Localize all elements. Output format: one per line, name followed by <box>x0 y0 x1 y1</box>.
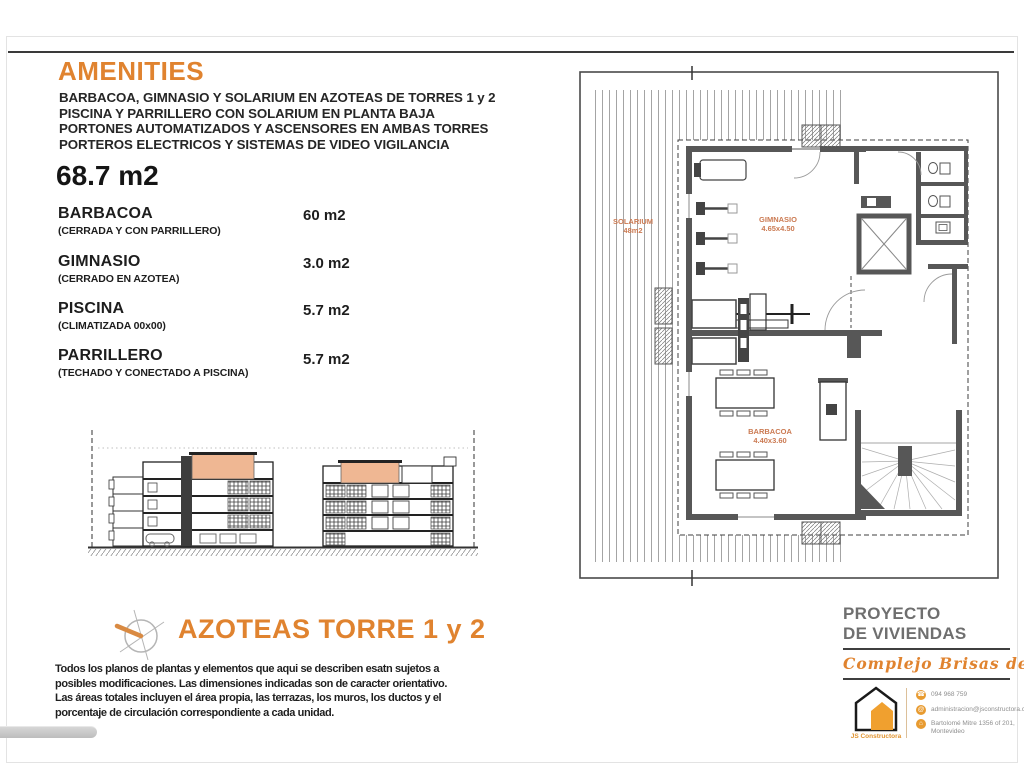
description-line: PORTEROS ELECTRICOS Y SISTEMAS DE VIDEO … <box>59 137 495 153</box>
disclaimer-line: Todos los planos de plantas y elementos … <box>55 662 447 677</box>
email-icon: @ <box>916 705 926 715</box>
amenity-row-gimnasio: GIMNASIO (CERRADO EN AZOTEA) <box>58 253 179 285</box>
amenity-note: (CLIMATIZADA 00x00) <box>58 320 166 332</box>
grill-counter <box>818 378 848 440</box>
contact-email: @ administracion@jsconstructora.com <box>916 705 1024 715</box>
amenity-area: 5.7 m2 <box>303 302 350 319</box>
compass-icon <box>112 608 168 662</box>
amenity-area: 60 m2 <box>303 207 346 224</box>
building-elevation-drawing <box>88 420 478 566</box>
amenities-title: AMENITIES <box>58 56 204 87</box>
total-area: 68.7 m2 <box>56 160 159 192</box>
company-logo <box>852 686 900 732</box>
description-line: BARBACOA, GIMNASIO Y SOLARIUM EN AZOTEAS… <box>59 90 495 106</box>
amenity-note: (CERRADA Y CON PARRILLERO) <box>58 225 221 237</box>
amenity-name: PISCINA <box>58 300 166 318</box>
disclaimer-line: posibles modificaciones. Las dimensiones… <box>55 677 447 692</box>
solarium-label: SOLARIUM <box>613 217 653 226</box>
tower-1-section <box>109 454 273 547</box>
phone-icon: ☎ <box>916 690 926 700</box>
rooftop-amenity-highlight <box>192 454 254 479</box>
amenity-name: BARBACOA <box>58 205 221 223</box>
contact-address: ⌂ Bartolomé Mitre 1356 of 201, Montevide… <box>916 719 1015 735</box>
floor-plan-drawing: SOLARIUM 48m2 GIMNASIO 4.65x4.50 BARBACO… <box>578 64 1000 588</box>
gimnasio-dim: 4.65x4.50 <box>761 224 794 233</box>
elevator-core <box>181 456 192 546</box>
amenity-note: (CERRADO EN AZOTEA) <box>58 273 179 285</box>
tower-2-section <box>323 457 456 546</box>
amenity-note: (TECHADO Y CONECTADO A PISCINA) <box>58 367 248 379</box>
amenity-row-parrillero: PARRILLERO (TECHADO Y CONECTADO A PISCIN… <box>58 347 248 379</box>
disclaimer: Todos los planos de plantas y elementos … <box>55 662 447 720</box>
barbacoa-label: BARBACOA <box>748 427 792 436</box>
bathroom-fixtures <box>929 163 951 234</box>
top-divider-line <box>8 51 1014 53</box>
amenity-name: PARRILLERO <box>58 347 248 365</box>
elevator-shaft <box>859 216 909 272</box>
description-line: PORTONES AUTOMATIZADOS Y ASCENSORES EN A… <box>59 121 495 137</box>
amenity-row-piscina: PISCINA (CLIMATIZADA 00x00) <box>58 300 166 332</box>
amenity-area: 3.0 m2 <box>303 255 350 272</box>
sink-counter <box>861 196 891 208</box>
footer-vertical-divider <box>906 688 907 738</box>
staircase <box>861 443 956 509</box>
disclaimer-line: Las áreas totales incluyen el área propi… <box>55 691 447 706</box>
barbacoa-dim: 4.40x3.60 <box>753 436 786 445</box>
bottom-gray-bar <box>0 726 97 738</box>
section-title: AZOTEAS TORRE 1 y 2 <box>178 614 486 645</box>
amenity-area: 5.7 m2 <box>303 351 350 368</box>
brochure-page: AMENITIES BARBACOA, GIMNASIO Y SOLARIUM … <box>0 0 1024 768</box>
disclaimer-line: porcentaje de circulación correspondient… <box>55 706 447 721</box>
rooftop-amenity-highlight <box>341 462 399 483</box>
location-icon: ⌂ <box>916 719 926 729</box>
gimnasio-label: GIMNASIO <box>759 215 797 224</box>
amenity-name: GIMNASIO <box>58 253 179 271</box>
complex-name: Complejo Brisas de Pando <box>843 654 1024 673</box>
description-line: PISCINA Y PARRILLERO CON SOLARIUM EN PLA… <box>59 106 495 122</box>
project-title: PROYECTO DE VIVIENDAS <box>843 604 967 644</box>
footer-divider-line <box>843 678 1010 680</box>
company-name: JS Constructora <box>845 733 907 740</box>
footer-divider-line <box>843 648 1010 650</box>
amenity-row-barbacoa: BARBACOA (CERRADA Y CON PARRILLERO) <box>58 205 221 237</box>
contact-phone: ☎ 094 968 759 <box>916 690 967 700</box>
amenities-description: BARBACOA, GIMNASIO Y SOLARIUM EN AZOTEAS… <box>59 90 495 152</box>
solarium-dim: 48m2 <box>623 226 642 235</box>
